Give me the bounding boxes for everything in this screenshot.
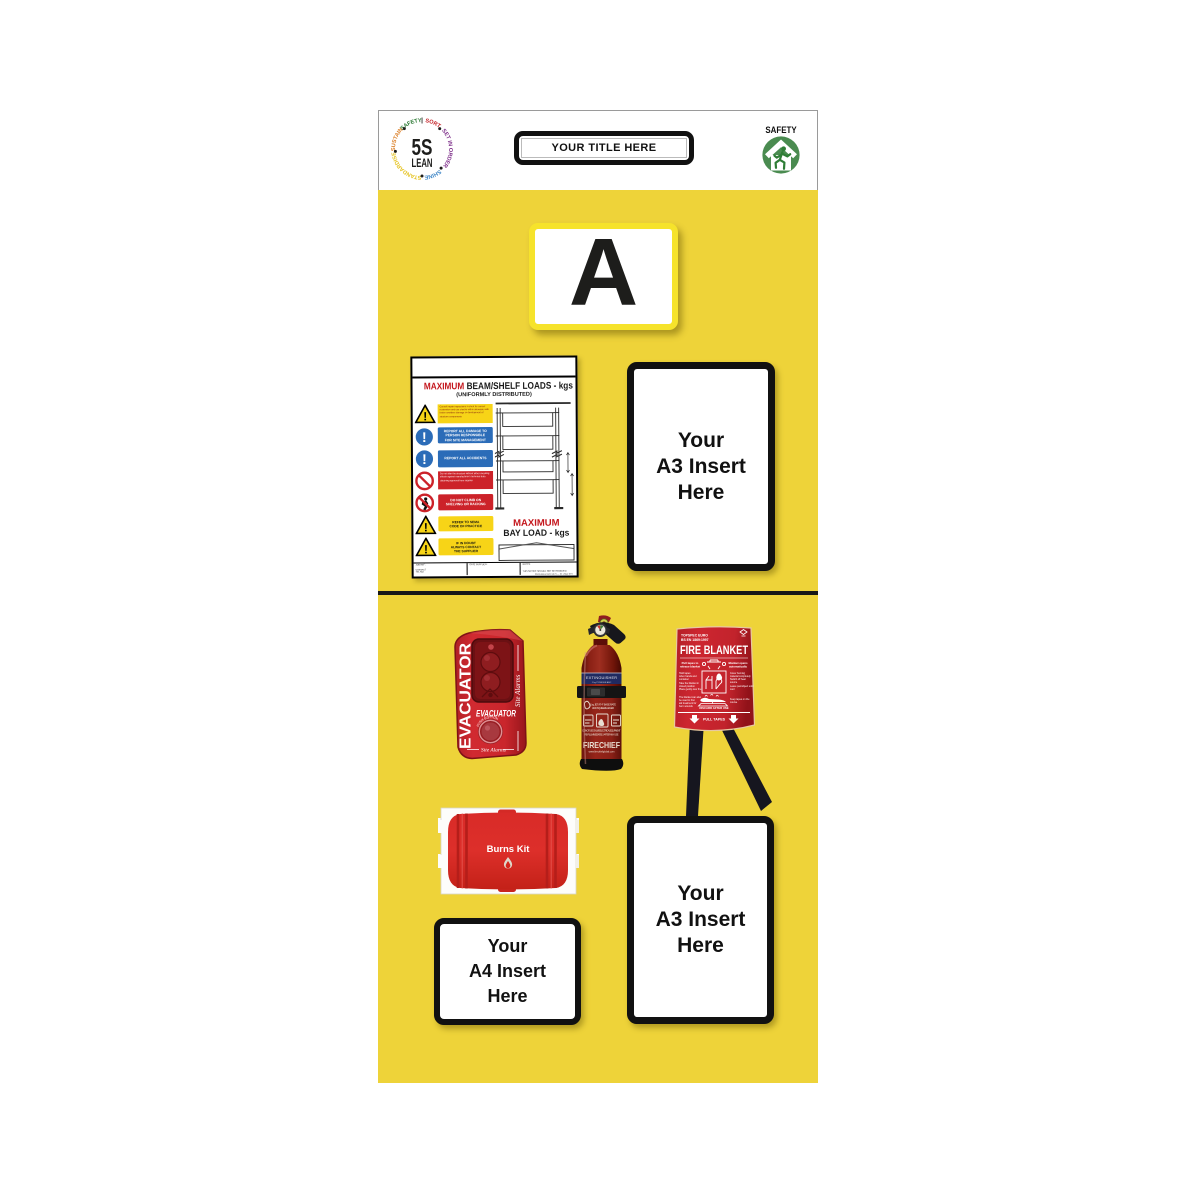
svg-text:!: ! (422, 429, 427, 445)
svg-text:BS EN 1869:1997: BS EN 1869:1997 (681, 638, 709, 642)
svg-text:EVACUATOR: EVACUATOR (458, 643, 475, 749)
svg-text:Site Alarms: Site Alarms (514, 674, 522, 707)
svg-text:source: source (730, 681, 738, 684)
svg-text:DISCARD AFTER USE: DISCARD AFTER USE (699, 706, 728, 710)
svg-text:DO NOT USE ON LIVE ELECTRICAL: DO NOT USE ON LIVE ELECTRICAL EQUIPMENT (583, 730, 622, 733)
svg-text:cool: cool (730, 688, 735, 691)
svg-text:Place gently over fire: Place gently over fire (679, 688, 702, 691)
svg-text:SET IN ORDER: SET IN ORDER (440, 128, 453, 168)
svg-text:!: ! (423, 409, 427, 423)
svg-text:EXTINGUISHER: EXTINGUISHER (586, 676, 617, 680)
svg-text:1 kg JET AT 4" BASE RATE: 1 kg JET AT 4" BASE RATE (590, 703, 616, 707)
svg-text:RE-FILL IMMEDIATELY AFTER ANY: RE-FILL IMMEDIATELY AFTER ANY USE (585, 734, 619, 737)
svg-text:SAFETY: SAFETY (400, 118, 423, 132)
svg-text:5S: 5S (412, 134, 433, 160)
svg-text:!: ! (424, 542, 428, 556)
svg-text:FIRECHIEF: FIRECHIEF (583, 740, 620, 750)
svg-text:release blanket: release blanket (680, 665, 700, 669)
svg-text:course: course (730, 701, 738, 704)
svg-text:TOPSPEC EURO: TOPSPEC EURO (681, 634, 708, 638)
svg-text:PULL TAPES: PULL TAPES (703, 718, 726, 722)
svg-text:container: container (679, 678, 689, 681)
svg-text:Burns Kit: Burns Kit (487, 844, 531, 855)
svg-text:!: ! (422, 451, 427, 467)
svg-text:|: | (421, 117, 423, 124)
svg-text:Site Alarms: Site Alarms (481, 748, 506, 754)
svg-text:automatically: automatically (729, 665, 747, 669)
svg-text:AND SQUEEZE LEVER: AND SQUEEZE LEVER (592, 706, 614, 710)
svg-text:FIRE BLANKET: FIRE BLANKET (680, 645, 748, 657)
svg-text:www.firechiefglobal.com: www.firechiefglobal.com (589, 751, 615, 754)
svg-text:burn wounds: burn wounds (679, 705, 693, 708)
svg-text:LEAN: LEAN (412, 158, 433, 170)
svg-text:EVACUATOR: EVACUATOR (476, 709, 516, 719)
svg-text:!: ! (424, 520, 428, 534)
svg-text:1 kg POWDER ABC: 1 kg POWDER ABC (592, 681, 612, 684)
